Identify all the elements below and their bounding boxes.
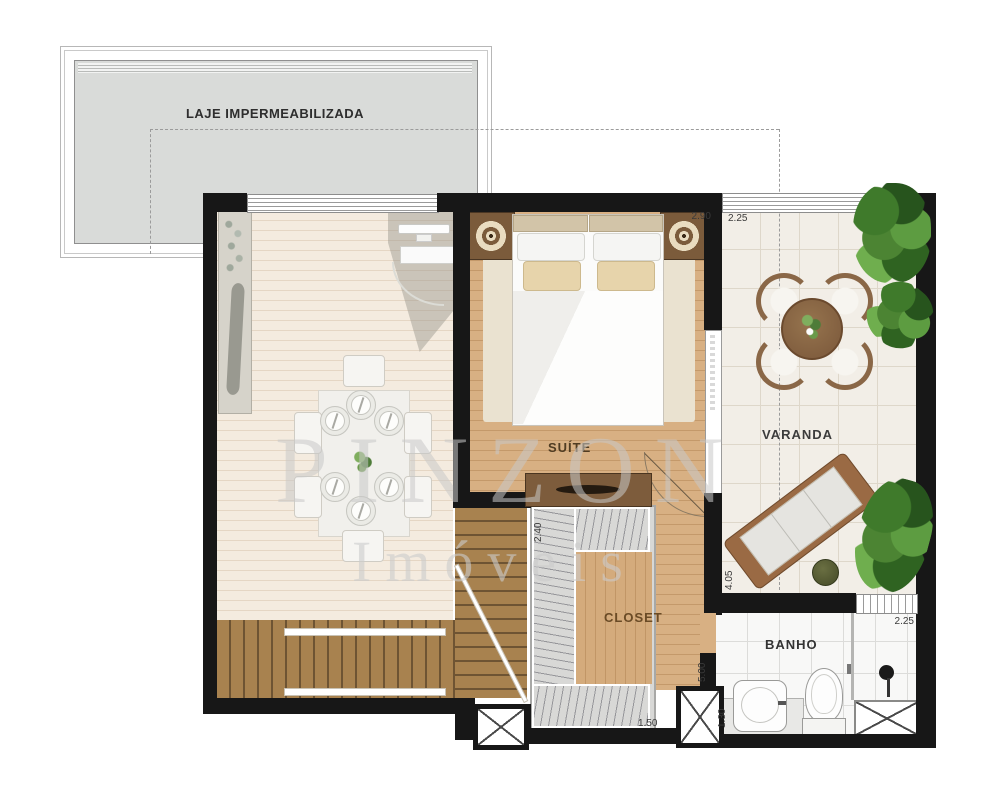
wall-closet-bottom: [525, 728, 686, 744]
cushion-seam: [803, 490, 831, 527]
wall-living-left: [203, 193, 217, 713]
headboard-right: [589, 215, 663, 232]
dim-banho-width: 2.25: [884, 616, 914, 627]
banho-label: BANHO: [765, 637, 818, 652]
decor-sculpture: [226, 283, 245, 396]
basin-bowl: [741, 687, 779, 723]
cutlery-icon: [358, 397, 365, 413]
cutlery-icon: [386, 479, 393, 495]
cutlery-icon: [358, 503, 365, 519]
wall-living-top-corner: [203, 193, 247, 212]
shower-glass-partition: [851, 612, 854, 700]
wall-living-bottom: [203, 698, 457, 714]
shower-arm: [887, 678, 890, 697]
stair-handrail-top: [285, 629, 445, 635]
wall-living-suite: [453, 193, 470, 508]
dim-suite-width: 2.90: [681, 211, 711, 222]
closet-label: CLOSET: [604, 610, 663, 625]
tv-bracket: [416, 234, 432, 242]
wall-suite-bottom: [453, 492, 531, 508]
banho-window: [856, 594, 918, 614]
nightstand-left: [467, 212, 515, 260]
cushion: [597, 261, 655, 291]
sliding-door-glass: [710, 335, 715, 413]
pillow: [517, 233, 585, 261]
closet-rack-bottom: [532, 684, 650, 728]
projection-line-vertical-left: [150, 129, 151, 254]
stair-handrail-bottom: [285, 689, 445, 695]
place-setting: [320, 472, 350, 502]
dim-banho-height: 1.30: [717, 696, 728, 728]
dim-varanda-height: 4.05: [724, 554, 735, 590]
dining-chair-right-1: [404, 412, 432, 454]
sideboard: [218, 208, 252, 414]
duct-shaft-small: [473, 704, 529, 750]
wall-suite-varanda-upper: [704, 212, 722, 330]
toilet-bowl: [805, 668, 843, 722]
dim-varanda-width: 2.25: [728, 213, 747, 224]
living-top-window: [247, 194, 439, 213]
headboard-left: [513, 215, 588, 232]
place-setting: [346, 496, 376, 526]
toilet-seat: [811, 674, 837, 714]
shower-door-handle: [847, 664, 851, 674]
suite-label: SUÍTE: [548, 440, 591, 455]
tv-panel: [398, 224, 450, 234]
dresser-handle: [556, 485, 620, 494]
place-setting: [374, 472, 404, 502]
decor-flowers-icon: [221, 215, 247, 277]
wall-banho-bottom: [700, 734, 936, 748]
place-setting: [346, 390, 376, 420]
varanda-label: VARANDA: [762, 427, 833, 442]
cushion: [523, 261, 581, 291]
place-setting: [374, 406, 404, 436]
cutlery-icon: [386, 413, 393, 429]
wall-varanda-banho: [704, 593, 856, 613]
dim-closet-bottom: 1.50: [638, 718, 657, 729]
dining-chair-head-bottom: [342, 530, 384, 562]
cutlery-icon: [332, 479, 339, 495]
dining-chair-left-1: [294, 412, 322, 454]
laje-label: LAJE IMPERMEABILIZADA: [74, 106, 476, 121]
table-plant-icon: [799, 312, 823, 340]
dim-closet-right: 5.00: [697, 650, 708, 682]
projection-line-horizontal: [150, 129, 779, 130]
pillow: [593, 233, 661, 261]
stair-upper-flight: [455, 508, 527, 698]
bed: [512, 214, 664, 426]
place-setting: [320, 406, 350, 436]
plant-bush-icon: [853, 183, 931, 283]
floorplan-canvas: LAJE IMPERMEABILIZADA: [0, 0, 1000, 800]
table-centerpiece-plant-icon: [352, 448, 374, 474]
wall-right: [916, 193, 936, 748]
banho-door-opening: [700, 613, 716, 653]
dresser: [525, 473, 652, 507]
dining-chair-right-2: [404, 476, 432, 518]
dining-chair-head-top: [343, 355, 385, 387]
sink-basin: [733, 680, 787, 732]
dim-closet-top: 2.40: [533, 506, 544, 542]
wall-stub-stairs: [455, 698, 475, 740]
suite-varanda-sliding-door: [705, 330, 722, 495]
faucet-icon: [778, 701, 786, 705]
dining-chair-left-2: [294, 476, 322, 518]
cutlery-icon: [332, 413, 339, 429]
shower-tray: [854, 700, 920, 737]
wall-suite-top: [437, 193, 722, 212]
pouf: [812, 559, 839, 586]
cushion-seam: [771, 514, 799, 551]
duvet: [513, 291, 663, 424]
laje-edge-lines: [78, 63, 472, 73]
